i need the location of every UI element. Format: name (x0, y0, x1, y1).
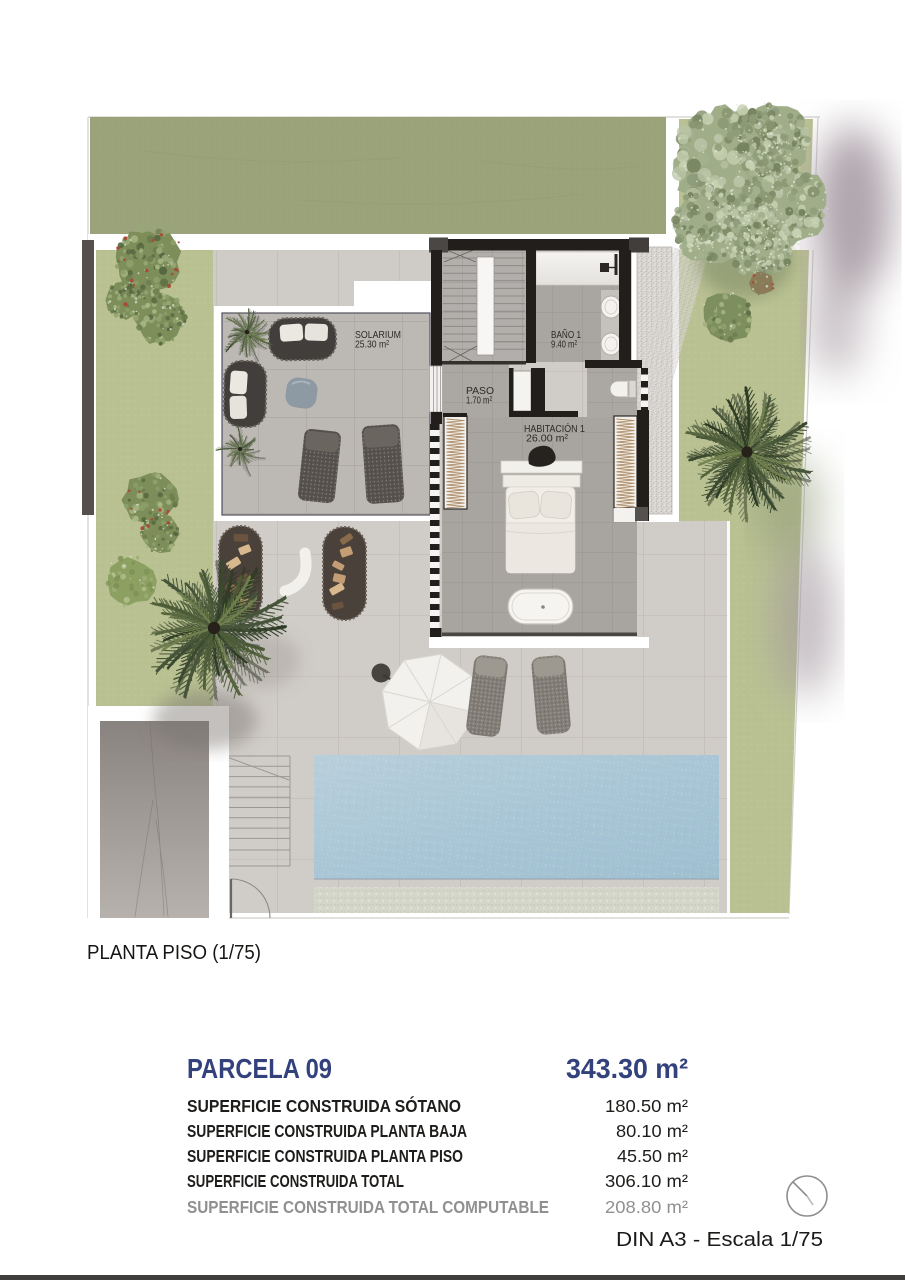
svg-text:343.30 m²: 343.30 m² (566, 1053, 688, 1084)
svg-text:SUPERFICIE CONSTRUIDA PLANTA B: SUPERFICIE CONSTRUIDA PLANTA BAJA (187, 1121, 467, 1141)
svg-text:1.70 m²: 1.70 m² (466, 395, 492, 407)
svg-text:PLANTA PISO (1/75): PLANTA PISO (1/75) (87, 942, 261, 964)
svg-text:180.50 m²: 180.50 m² (605, 1096, 688, 1116)
svg-text:DIN A3 - Escala 1/75: DIN A3 - Escala 1/75 (616, 1229, 823, 1251)
svg-text:9.40 m²: 9.40 m² (551, 339, 577, 351)
svg-text:SUPERFICIE CONSTRUIDA SÓTANO: SUPERFICIE CONSTRUIDA SÓTANO (187, 1095, 461, 1116)
svg-text:SUPERFICIE CONSTRUIDA PLANTA P: SUPERFICIE CONSTRUIDA PLANTA PISO (187, 1146, 463, 1166)
svg-text:SUPERFICIE CONSTRUIDA TOTAL: SUPERFICIE CONSTRUIDA TOTAL (187, 1171, 404, 1191)
svg-text:26.00 m²: 26.00 m² (526, 433, 569, 445)
svg-text:25.30 m²: 25.30 m² (355, 339, 389, 351)
svg-text:80.10 m²: 80.10 m² (616, 1121, 688, 1141)
svg-text:306.10 m²: 306.10 m² (605, 1171, 688, 1191)
svg-text:SUPERFICIE CONSTRUIDA TOTAL CO: SUPERFICIE CONSTRUIDA TOTAL COMPUTABLE (187, 1197, 549, 1217)
svg-text:45.50 m²: 45.50 m² (617, 1146, 688, 1166)
svg-text:208.80 m²: 208.80 m² (605, 1197, 688, 1217)
svg-text:PARCELA 09: PARCELA 09 (187, 1053, 332, 1084)
